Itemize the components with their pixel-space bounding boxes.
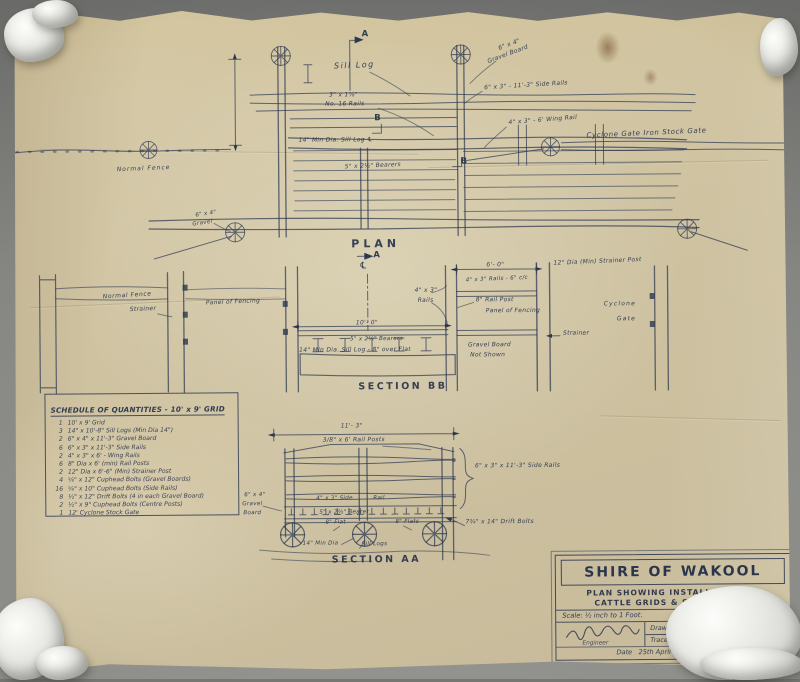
bb-label-gravel-board: Gravel Board: [468, 342, 511, 349]
bb-label-rail-post: 8" Rail Post: [476, 297, 514, 304]
engineer-signature-cell: Engineer: [556, 622, 644, 647]
aa-label-side-rail-size: 4" x 3" Side: [316, 495, 353, 502]
aa-label-drift-bolts: 7¾" x 14" Drift Bolts: [465, 519, 533, 526]
plan-section-marker-b-left: B: [374, 113, 381, 123]
bb-label-rails-size: 4" x 3": [415, 288, 438, 295]
schedule-desc: 10' x 9' Grid: [68, 419, 105, 427]
bb-label-strainer-mid: Strainer: [563, 331, 589, 338]
schedule-qty: 6: [51, 461, 63, 469]
centerline-symbol: ℄: [360, 261, 366, 271]
schedule-qty: 2: [51, 452, 63, 460]
date-label: Date: [616, 648, 632, 656]
section-bb-title: SECTION BB: [358, 382, 447, 394]
aa-label-bearer: 5" x 2½" Bearer: [319, 509, 369, 516]
schedule-qty: 1: [51, 420, 63, 428]
bb-label-cyclone: Cyclone: [604, 301, 636, 308]
aa-label-flat-left: 8" Flat: [325, 519, 345, 526]
schedule-row: 112' Cyclone Stock Gate: [51, 509, 234, 519]
drawing-artwork: A Sill Log 3" x 1⅞" No. 16 Rails 6" x 4"…: [0, 0, 800, 682]
schedule-title: SCHEDULE OF QUANTITIES - 10' x 9' GRID: [51, 404, 225, 416]
photo-of-drawing: { "plan": { "title": "PLAN", "marker_a":…: [0, 0, 800, 679]
aa-label-sill-logs: Sill Logs: [362, 541, 388, 548]
aa-label-gravel: Gravel: [242, 501, 262, 508]
drawing-sheet: A Sill Log 3" x 1⅞" No. 16 Rails 6" x 4"…: [11, 3, 790, 675]
plan-label-grid-rails: No. 16 Rails: [325, 101, 364, 108]
schedule-qty: 6: [51, 444, 63, 452]
aa-label-min-dia: 14" Min Dia: [303, 540, 339, 547]
plan-linework: [12, 33, 789, 263]
schedule-qty: 4: [51, 477, 63, 485]
section-bb-linework: [39, 262, 668, 395]
schedule-qty: 2: [51, 436, 63, 444]
aa-label-gravel-size: 6" x 4": [244, 492, 265, 499]
schedule-qty: 16: [51, 485, 63, 493]
bb-dim-10ft: 10'- 0": [356, 320, 378, 327]
bb-label-rails: Rails: [418, 298, 434, 305]
bb-label-gate: Gate: [617, 316, 636, 323]
bb-label-strainer-left: Strainer: [130, 306, 157, 314]
plan-section-marker-a-bottom: A: [373, 250, 380, 260]
aa-label-board: Board: [243, 510, 261, 517]
aa-label-side-rail: Rail: [373, 495, 385, 502]
schedule-qty: 8: [51, 493, 63, 501]
engineer-label: Engineer: [582, 640, 608, 646]
plan-title: PLAN: [351, 238, 400, 251]
tissue-corner-top-left-2: [32, 0, 78, 28]
schedule-desc: 12' Cyclone Stock Gate: [68, 509, 139, 518]
bb-label-not-shown: Not Shown: [470, 352, 505, 359]
plan-label-sill-log: Sill Log: [334, 60, 375, 71]
plan-label-sill-log-dia: 14" Min Dia. Sill Log ℄: [298, 137, 372, 144]
tissue-corner-bottom-right-2: [700, 648, 800, 680]
plan-section-marker-b-right: B: [461, 156, 468, 166]
schedule-qty: 2: [51, 502, 63, 510]
tissue-corner-top-right: [760, 18, 798, 76]
plan-label-grid-rails-size: 3" x 1⅞": [329, 92, 358, 99]
schedule-of-quantities: SCHEDULE OF QUANTITIES - 10' x 9' GRID 1…: [44, 392, 239, 517]
aa-label-rail-posts: 3/8" x 6' Rail Posts: [323, 437, 385, 444]
tissue-corner-bottom-left-2: [36, 646, 88, 680]
bb-label-panel-of-fencing-right: Panel of Fencing: [486, 308, 540, 315]
schedule-qty: 1: [51, 510, 63, 518]
bb-dim-6ft: 6'- 0": [486, 262, 504, 269]
aa-label-flat-right: 8" Flats: [395, 519, 419, 526]
plan-section-marker-a-top: A: [362, 29, 369, 39]
schedule-qty: 2: [51, 469, 63, 477]
aa-label-side-rails-brace: 6" x 3" x 11'-3" Side Rails: [475, 463, 560, 471]
title-block-org: SHIRE OF WAKOOL: [561, 558, 785, 586]
bb-label-sill-log: 14" Min Dia. Sill Log - 8" over Flat: [299, 347, 411, 355]
schedule-qty: 3: [51, 428, 63, 436]
aa-dim-11ft3: 11'- 3": [341, 423, 363, 430]
bb-label-bearers: 5" x 2½" Bearers: [350, 336, 403, 343]
section-aa-title: SECTION AA: [332, 555, 421, 567]
